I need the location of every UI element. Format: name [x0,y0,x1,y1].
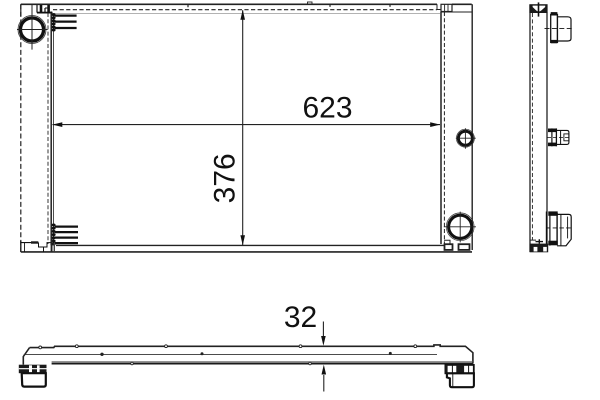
svg-text:32: 32 [284,301,317,334]
svg-text:623: 623 [302,92,352,125]
svg-text:376: 376 [209,153,242,203]
